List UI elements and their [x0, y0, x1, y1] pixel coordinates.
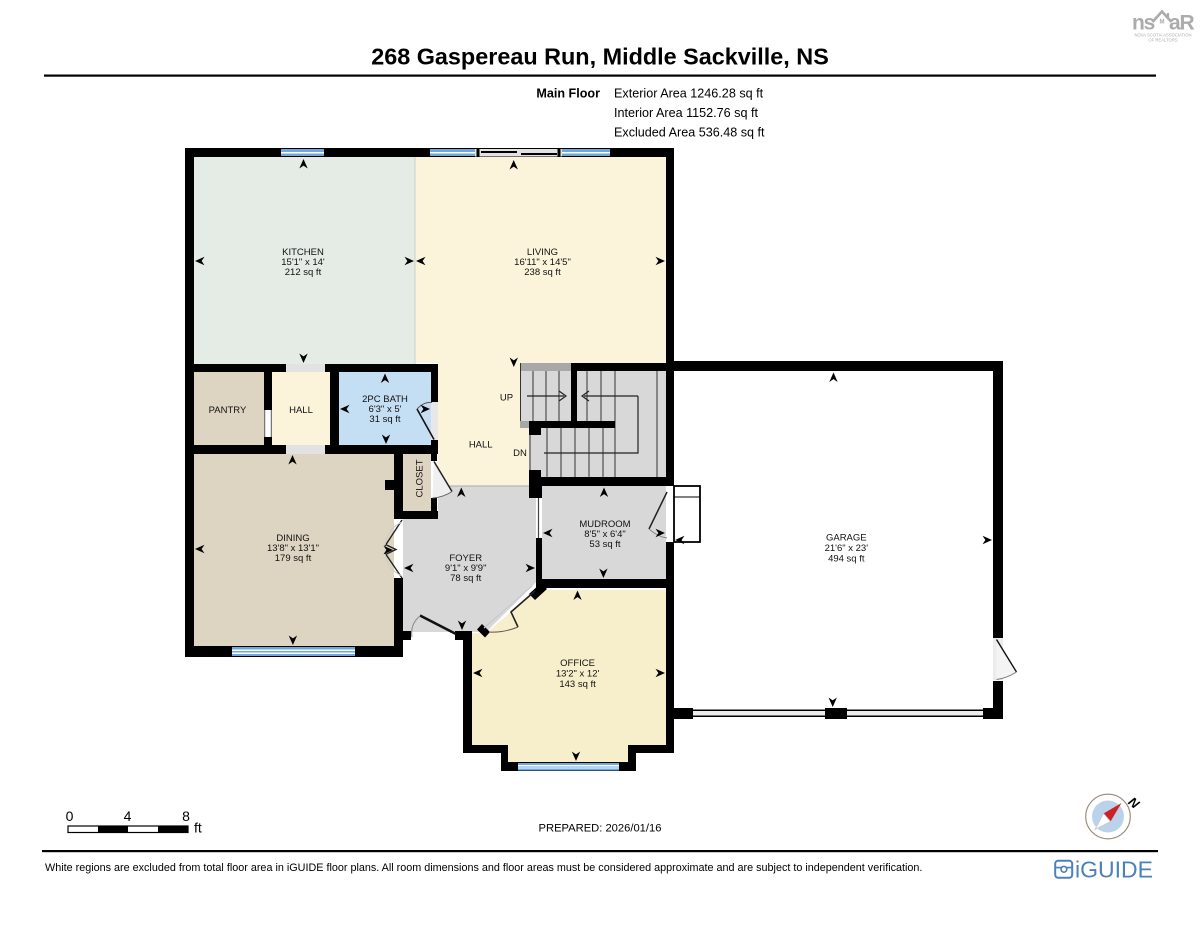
svg-text:UP: UP [500, 393, 513, 404]
svg-text:ns: ns [1132, 12, 1155, 35]
svg-text:268 Gaspereau Run, Middle Sack: 268 Gaspereau Run, Middle Sackville, NS [371, 44, 829, 70]
svg-text:0: 0 [66, 808, 74, 824]
svg-text:Interior Area 1152.76 sq ft: Interior Area 1152.76 sq ft [614, 106, 758, 120]
svg-text:White regions are excluded fro: White regions are excluded from total fl… [45, 862, 922, 874]
svg-text:ft: ft [194, 820, 202, 836]
svg-text:GARAGE: GARAGE [826, 533, 867, 544]
svg-text:143 sq ft: 143 sq ft [559, 679, 596, 690]
svg-text:31 sq ft: 31 sq ft [369, 414, 401, 425]
svg-text:CLOSET: CLOSET [415, 459, 426, 497]
svg-text:4: 4 [124, 808, 132, 824]
svg-text:PREPARED: 2026/01/16: PREPARED: 2026/01/16 [539, 823, 662, 835]
svg-text:238 sq ft: 238 sq ft [524, 267, 561, 278]
svg-text:13'2" x 12': 13'2" x 12' [556, 669, 600, 680]
svg-text:DN: DN [513, 448, 527, 459]
svg-text:HALL: HALL [289, 405, 313, 416]
svg-text:212 sq ft: 212 sq ft [285, 267, 322, 278]
svg-text:OF REALTORS: OF REALTORS [1148, 38, 1177, 43]
svg-text:Excluded Area 536.48 sq ft: Excluded Area 536.48 sq ft [614, 125, 765, 139]
svg-text:HALL: HALL [469, 440, 493, 451]
svg-text:OFFICE: OFFICE [560, 658, 595, 669]
svg-text:Exterior Area 1246.28 sq ft: Exterior Area 1246.28 sq ft [614, 87, 764, 101]
svg-text:21'6" x 23': 21'6" x 23' [825, 543, 869, 554]
svg-text:78 sq ft: 78 sq ft [450, 573, 482, 584]
svg-text:494 sq ft: 494 sq ft [828, 554, 865, 565]
svg-text:PANTRY: PANTRY [209, 405, 247, 416]
svg-text:M: M [1160, 20, 1165, 26]
svg-text:8: 8 [182, 808, 190, 824]
svg-text:179 sq ft: 179 sq ft [275, 553, 312, 564]
svg-text:53 sq ft: 53 sq ft [589, 539, 621, 550]
svg-text:iGUIDE: iGUIDE [1075, 857, 1153, 883]
svg-text:aR: aR [1169, 12, 1194, 35]
svg-text:Main Floor: Main Floor [536, 87, 600, 101]
